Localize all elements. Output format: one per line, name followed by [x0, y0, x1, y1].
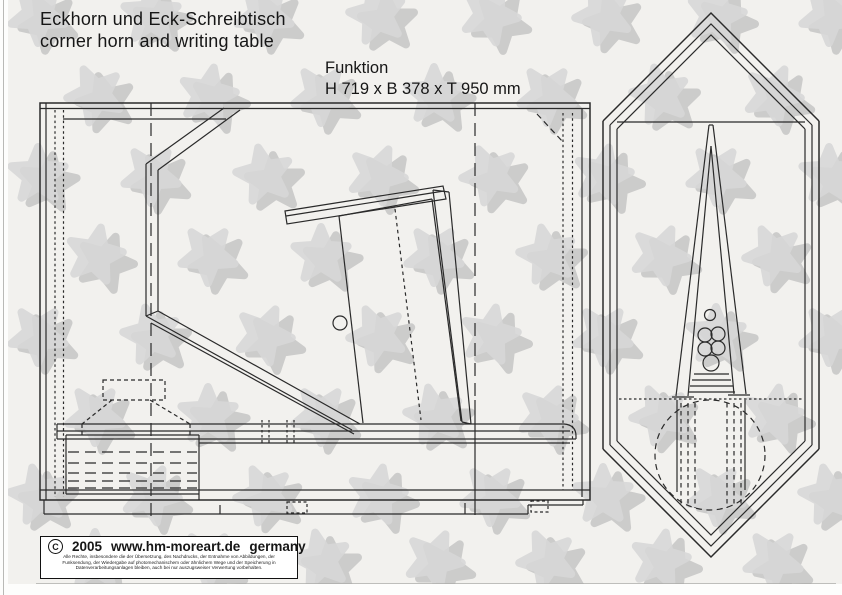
spec-label: Funktion — [325, 58, 521, 79]
legal-text-line-3: Datenverarbeitungsanlagen bleiben, auch … — [41, 565, 297, 571]
copyright-line: c 2005 www.hm-moreart.de germany — [41, 538, 297, 554]
copyright-year: 2005 — [72, 539, 102, 554]
copyright-icon: c — [48, 539, 63, 554]
scanned-plan-page: Eckhorn und Eck-Schreibtisch corner horn… — [0, 0, 842, 595]
copyright-box: c 2005 www.hm-moreart.de germany Alle Re… — [40, 536, 298, 579]
legal-text-line-1: Alle Rechte, insbesondere die der Überse… — [41, 554, 297, 560]
page-left-edge-line — [3, 0, 4, 595]
copyright-website: www.hm-moreart.de — [111, 539, 240, 554]
function-spec: Funktion H 719 x B 378 x T 950 mm — [325, 58, 521, 100]
page-title: Eckhorn und Eck-Schreibtisch corner horn… — [40, 8, 286, 52]
page-bottom-edge-line — [36, 583, 836, 584]
spec-dimensions: H 719 x B 378 x T 950 mm — [325, 79, 521, 100]
title-english: corner horn and writing table — [40, 30, 286, 52]
copyright-country: germany — [249, 539, 305, 554]
title-german: Eckhorn und Eck-Schreibtisch — [40, 8, 286, 30]
